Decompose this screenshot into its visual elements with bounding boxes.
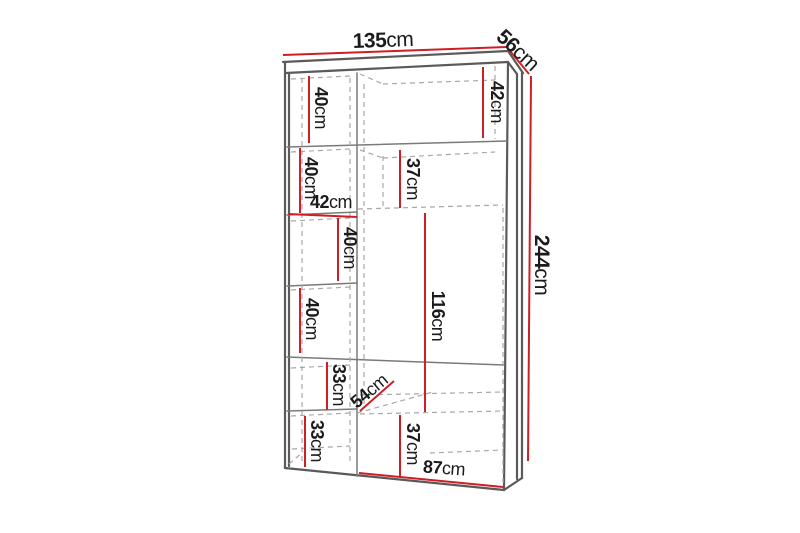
label-hanging-section: 116cm — [428, 291, 448, 342]
label-row5-left-shelf: 33cm — [329, 364, 349, 406]
label-left-column-width: 42cm — [310, 192, 352, 212]
shelf-row3-left — [287, 283, 357, 286]
bottom-front-edge — [285, 468, 504, 490]
shelf-row1 — [287, 141, 507, 147]
dashed-line — [430, 450, 503, 453]
dashed-line — [291, 76, 350, 79]
label-top-left-shelf: 40cm — [311, 87, 331, 129]
label-bottom-middle-shelf: 37cm — [403, 423, 423, 465]
label-bottom-left-shelf: 33cm — [307, 420, 327, 462]
dim-line-left-column-width — [288, 214, 357, 217]
label-right-column-width: 87cm — [422, 457, 465, 480]
top-panel-bottom-edge — [286, 62, 508, 73]
bottom-right-depth-edge — [504, 478, 522, 490]
label-row4-left-shelf: 40cm — [302, 298, 322, 340]
dashed-line — [360, 74, 383, 84]
label-overall-depth: 56cm — [492, 25, 544, 75]
dashed-line — [291, 413, 350, 416]
dashed-line — [291, 218, 350, 221]
label-row2-middle-shelf: 37cm — [403, 158, 423, 200]
top-panel-front-edge — [283, 51, 508, 62]
label-row3-shelf: 40cm — [340, 227, 360, 269]
shelf-row5-left — [287, 409, 357, 411]
dashed-line — [358, 205, 503, 209]
dashed-line — [360, 411, 503, 414]
cabinet-shelves — [287, 73, 507, 476]
label-overall-height: 244cm — [531, 235, 554, 296]
dashed-line — [289, 452, 303, 464]
shelf-row4-full — [287, 357, 504, 365]
dimension-diagram: 135cm 56cm 244cm 40cm 42cm 40cm 37cm 42c… — [0, 0, 800, 533]
right-front-edge — [504, 62, 508, 490]
dashed-line — [383, 80, 495, 84]
label-top-right-shelf: 42cm — [487, 81, 507, 123]
label-overall-width: 135cm — [352, 27, 413, 52]
